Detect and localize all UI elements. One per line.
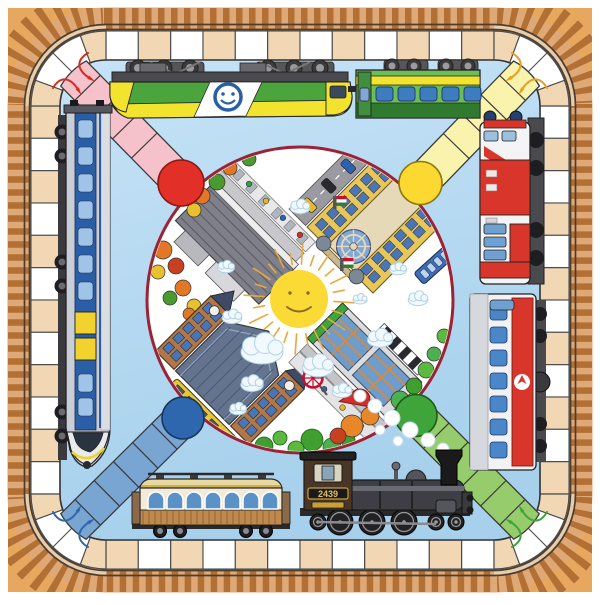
svg-text:2439: 2439 bbox=[318, 489, 338, 499]
